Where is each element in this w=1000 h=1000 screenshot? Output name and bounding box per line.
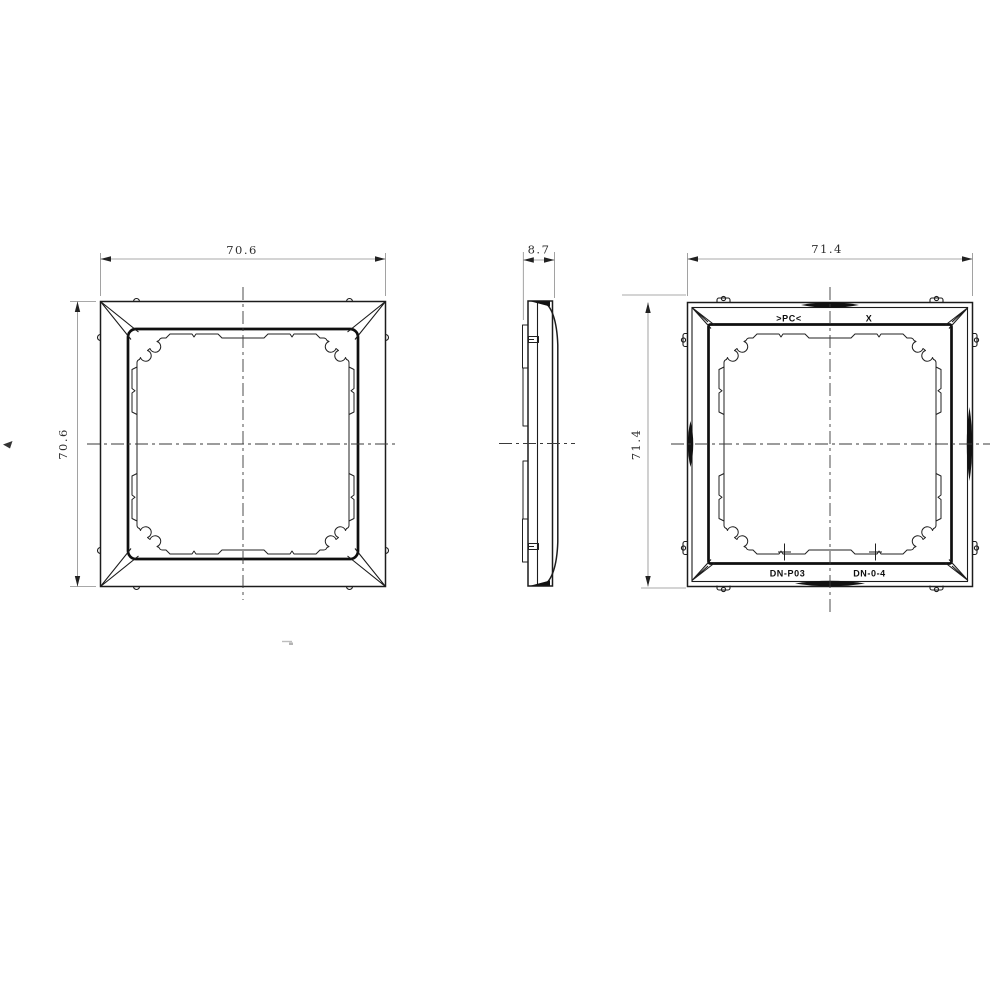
front-view bbox=[87, 287, 399, 600]
stray-smudge-mark bbox=[282, 642, 293, 646]
dim-front-height-text: 70.6 bbox=[56, 428, 70, 460]
dim-side-thickness-text: 8.7 bbox=[528, 243, 551, 257]
dim-back-height-text: 71.4 bbox=[629, 429, 643, 461]
back-inner-ring bbox=[692, 308, 968, 582]
dim-front-width-text: 70.6 bbox=[226, 243, 258, 257]
side-view bbox=[499, 301, 575, 586]
side-top-wedge bbox=[531, 302, 550, 307]
stray-arrow-mark bbox=[3, 441, 13, 449]
dim-back-width-text: 71.4 bbox=[811, 242, 843, 256]
back-marking-mold-no: DN-0-4 bbox=[853, 569, 886, 579]
back-marking-material: >PC< bbox=[776, 314, 801, 324]
dim-back-height: 71.4 bbox=[622, 295, 686, 588]
technical-drawing-sheet: 70.6 70.6 8.7 bbox=[0, 0, 1000, 1000]
back-gate-mark-left bbox=[778, 544, 791, 561]
back-gate-mark-right bbox=[869, 544, 882, 561]
side-bottom-wedge bbox=[531, 581, 550, 586]
drawing-svg: 70.6 70.6 8.7 bbox=[0, 0, 1000, 1000]
back-view: >PC< X DN-P03 DN-0-4 bbox=[671, 287, 990, 612]
back-marking-cavity: X bbox=[866, 314, 873, 324]
back-marking-part-no: DN-P03 bbox=[770, 569, 806, 579]
